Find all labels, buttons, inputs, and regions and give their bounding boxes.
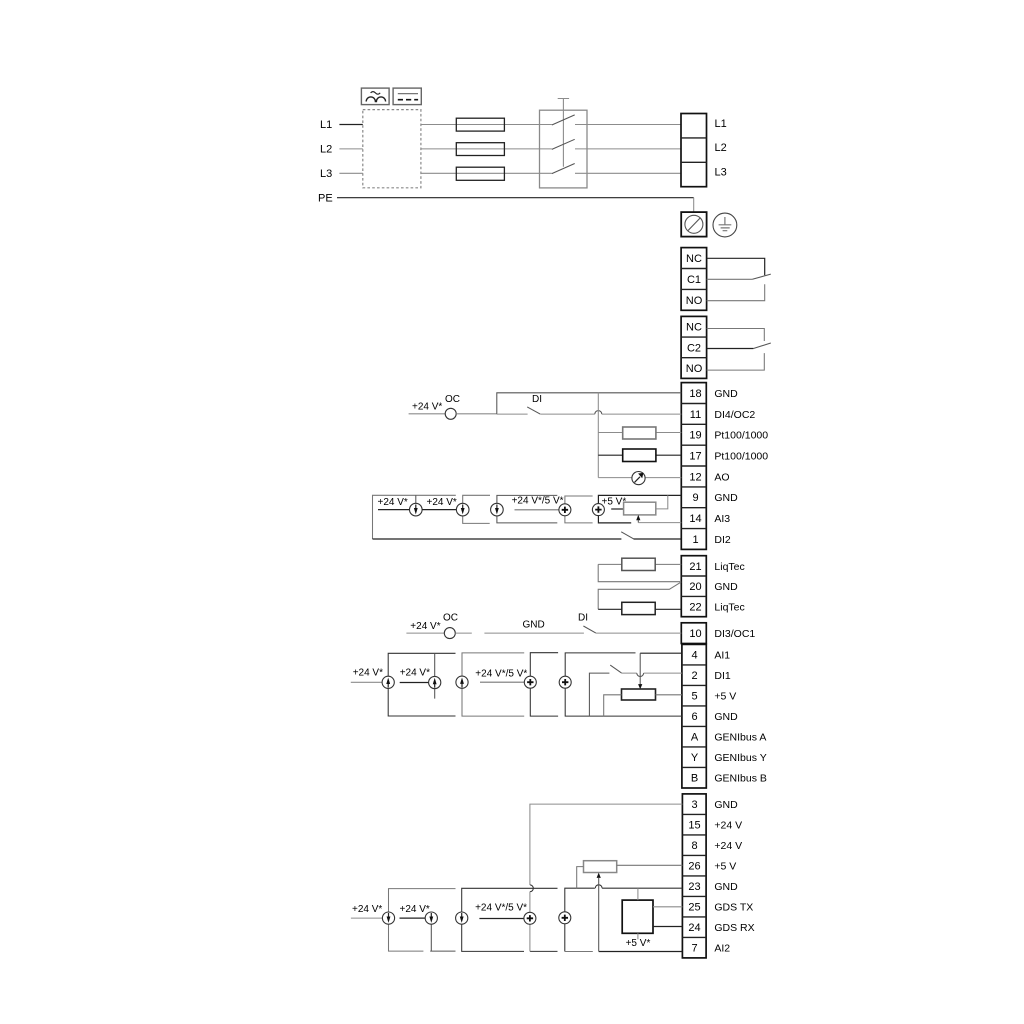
svg-text:GENIbus B: GENIbus B — [714, 773, 767, 785]
svg-text:B: B — [691, 773, 698, 785]
svg-text:C1: C1 — [687, 274, 701, 286]
svg-text:9: 9 — [692, 492, 698, 504]
svg-text:DI4/OC2: DI4/OC2 — [714, 409, 755, 421]
svg-text:12: 12 — [689, 471, 701, 483]
svg-text:10: 10 — [689, 628, 701, 640]
svg-text:DI: DI — [532, 394, 542, 405]
svg-text:26: 26 — [688, 861, 700, 873]
svg-text:+24 V: +24 V — [714, 840, 742, 852]
svg-text:+24 V*/5 V*: +24 V*/5 V* — [475, 669, 527, 680]
svg-text:17: 17 — [689, 451, 701, 463]
svg-text:GDS TX: GDS TX — [714, 902, 753, 914]
svg-text:+24 V*: +24 V* — [400, 667, 430, 678]
svg-text:+5 V*: +5 V* — [602, 497, 627, 508]
svg-text:DI2: DI2 — [714, 534, 731, 546]
svg-text:GENIbus Y: GENIbus Y — [714, 752, 766, 764]
svg-text:8: 8 — [691, 840, 697, 852]
svg-text:Y: Y — [691, 752, 699, 764]
svg-text:DI1: DI1 — [714, 670, 731, 682]
svg-text:+5 V: +5 V — [714, 691, 736, 703]
svg-text:Pt100/1000: Pt100/1000 — [714, 430, 768, 442]
svg-text:AI1: AI1 — [714, 650, 730, 662]
svg-text:L3: L3 — [320, 168, 332, 180]
svg-text:6: 6 — [691, 711, 697, 723]
svg-text:L1: L1 — [320, 119, 332, 131]
svg-text:GND: GND — [714, 711, 738, 723]
svg-text:+24 V*/5 V*: +24 V*/5 V* — [512, 496, 564, 507]
svg-text:+24 V*: +24 V* — [410, 621, 440, 632]
svg-text:1: 1 — [692, 534, 698, 546]
svg-text:DI: DI — [578, 613, 588, 624]
svg-text:7: 7 — [691, 943, 697, 955]
svg-text:AI2: AI2 — [714, 943, 730, 955]
svg-text:+5 V*: +5 V* — [626, 938, 651, 949]
svg-text:14: 14 — [689, 513, 701, 525]
svg-text:+24 V*: +24 V* — [353, 667, 383, 678]
svg-text:25: 25 — [688, 902, 700, 914]
svg-text:L3: L3 — [715, 167, 727, 179]
svg-text:20: 20 — [689, 581, 701, 593]
svg-text:18: 18 — [689, 388, 701, 400]
svg-text:+24 V*/5 V*: +24 V*/5 V* — [475, 903, 527, 914]
svg-text:GND: GND — [523, 620, 545, 631]
svg-text:+5 V: +5 V — [714, 861, 736, 873]
svg-text:OC: OC — [445, 394, 460, 405]
svg-text:5: 5 — [691, 691, 697, 703]
svg-text:+24 V*: +24 V* — [378, 497, 408, 508]
svg-text:PE: PE — [318, 193, 333, 205]
svg-text:NO: NO — [686, 363, 703, 375]
svg-text:A: A — [691, 732, 699, 744]
svg-text:GND: GND — [714, 492, 738, 504]
svg-text:NC: NC — [686, 322, 702, 334]
svg-text:L1: L1 — [715, 118, 727, 130]
svg-text:+24 V*: +24 V* — [352, 904, 382, 915]
svg-text:L2: L2 — [320, 144, 332, 156]
svg-text:NC: NC — [686, 253, 702, 265]
svg-text:GND: GND — [714, 581, 738, 593]
svg-text:22: 22 — [689, 602, 701, 614]
svg-text:11: 11 — [690, 409, 701, 421]
svg-text:19: 19 — [689, 430, 701, 442]
svg-text:GENIbus A: GENIbus A — [714, 732, 766, 744]
svg-text:L2: L2 — [715, 142, 727, 154]
svg-text:GND: GND — [714, 799, 738, 811]
svg-text:24: 24 — [688, 922, 700, 934]
svg-text:4: 4 — [691, 650, 697, 662]
svg-text:+24 V*: +24 V* — [412, 402, 442, 413]
svg-text:GND: GND — [714, 388, 738, 400]
svg-text:+24 V*: +24 V* — [427, 497, 457, 508]
svg-text:2: 2 — [691, 670, 697, 682]
svg-text:OC: OC — [443, 613, 458, 624]
svg-text:+24 V*: +24 V* — [400, 904, 430, 915]
svg-text:AI3: AI3 — [714, 513, 730, 525]
svg-text:GDS RX: GDS RX — [714, 922, 754, 934]
svg-text:AO: AO — [714, 471, 729, 483]
svg-text:3: 3 — [691, 799, 697, 811]
svg-text:15: 15 — [688, 820, 700, 832]
svg-text:GND: GND — [714, 881, 738, 893]
svg-text:C2: C2 — [687, 342, 701, 354]
svg-text:Pt100/1000: Pt100/1000 — [714, 451, 768, 463]
svg-text:NO: NO — [686, 295, 703, 307]
svg-text:DI3/OC1: DI3/OC1 — [714, 628, 755, 640]
svg-text:+24 V: +24 V — [714, 820, 742, 832]
svg-text:LiqTec: LiqTec — [714, 561, 744, 573]
svg-text:21: 21 — [689, 561, 701, 573]
svg-text:LiqTec: LiqTec — [714, 602, 744, 614]
svg-text:23: 23 — [688, 881, 700, 893]
